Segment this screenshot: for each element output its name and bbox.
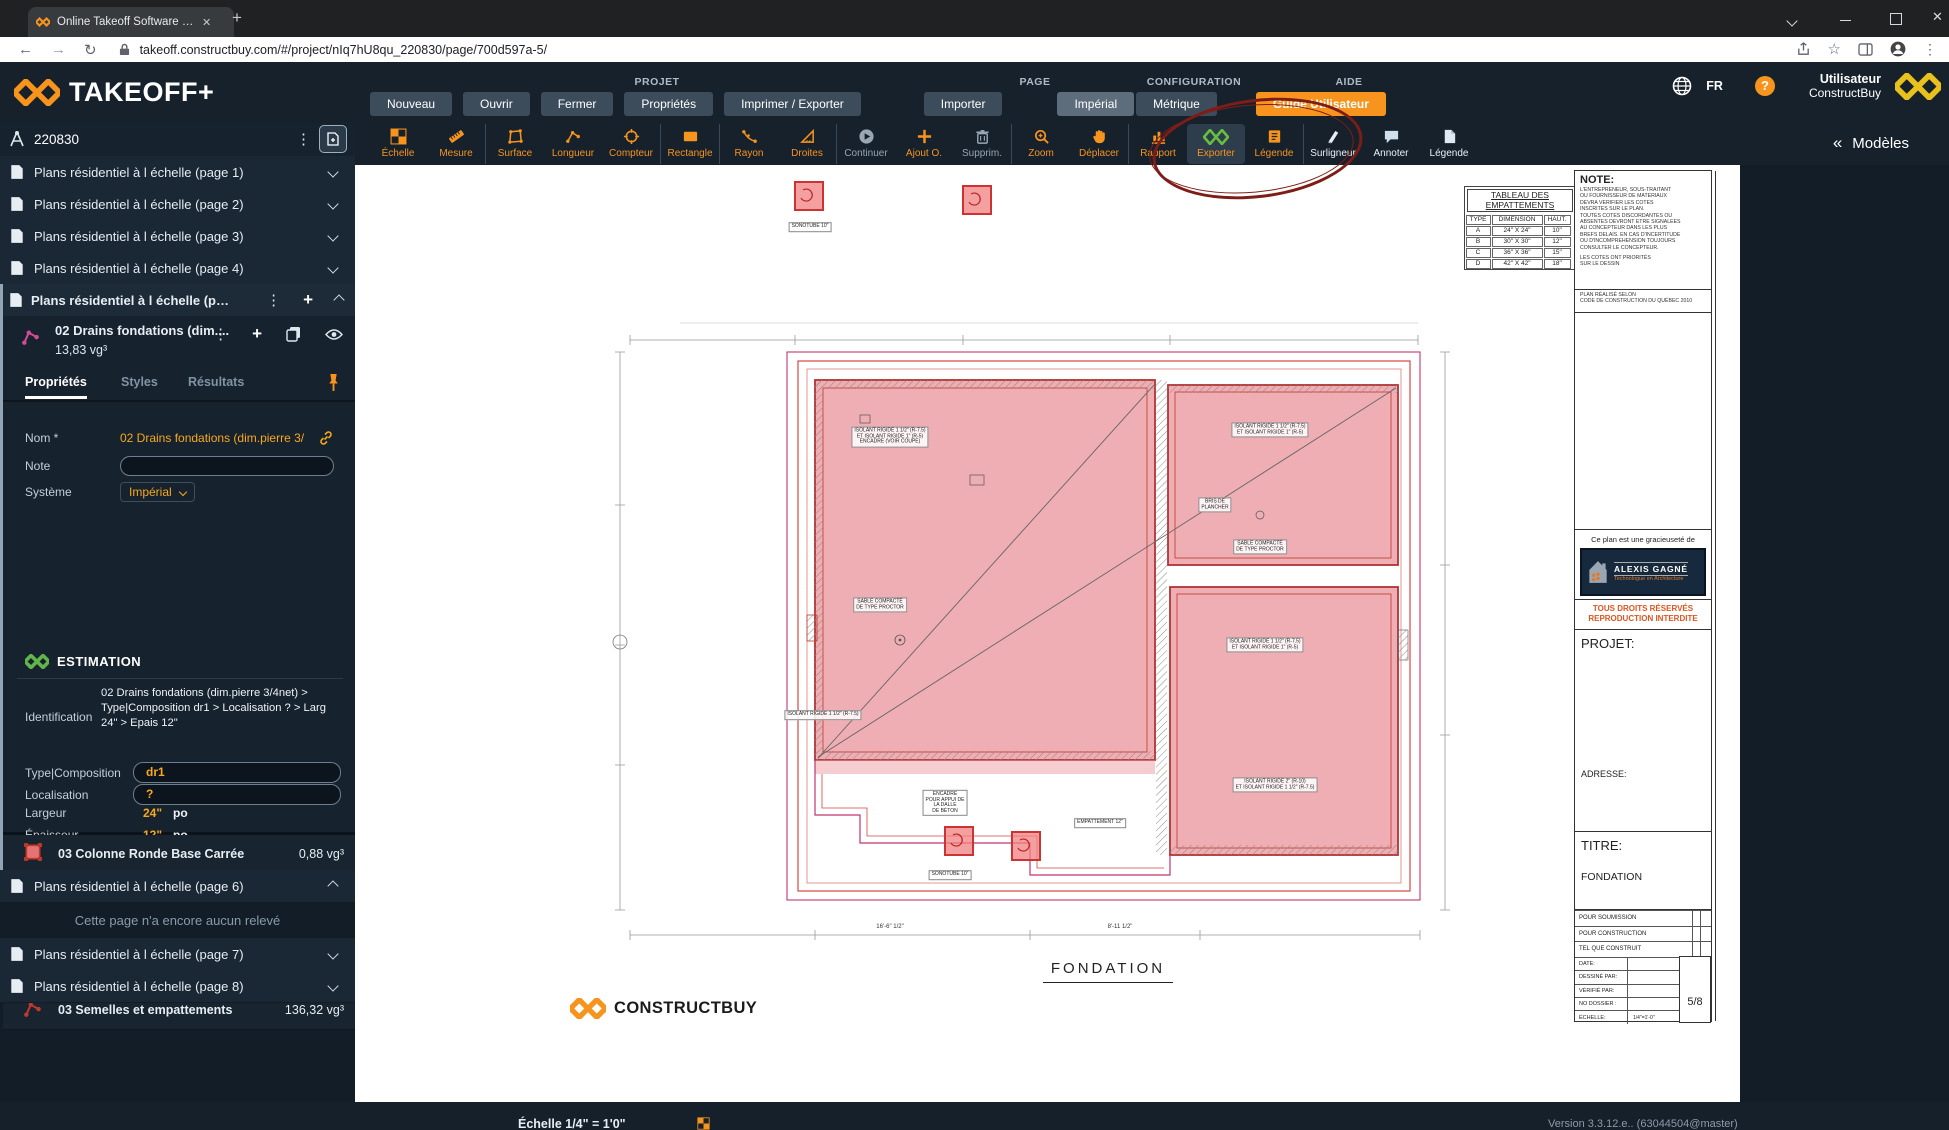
measurement-tabs: Propriétés Styles Résultats [3,366,355,402]
chevron-up-icon[interactable] [333,294,344,305]
note-title: NOTE: [1580,174,1711,186]
tool-annoter[interactable]: Annoter [1362,124,1420,164]
tab-styles[interactable]: Styles [121,375,158,389]
measurement-name: 02 Drains fondations (dim.... [55,323,230,338]
type-composition-label: Type|Composition [25,766,133,780]
fermer-button[interactable]: Fermer [541,92,614,116]
estimation-header: ESTIMATION [25,654,141,669]
largeur-label: Largeur [25,806,120,820]
sheet-number: 5/8 [1679,956,1711,1023]
note-body: L'ENTREPRENEUR, SOUS-TRAITANT OU FOURNIS… [1580,187,1711,251]
page-icon [10,946,24,962]
tableau-cell: 15" [1544,248,1571,258]
project-number: 220830 [34,132,79,147]
models-label: Modèles [1852,135,1909,152]
largeur-value[interactable]: 24" [143,806,173,820]
gracieusete-text: Ce plan est une gracieuseté de [1575,535,1711,544]
page-plus-icon [327,132,339,146]
scale-label[interactable]: Échelle 1/4" = 1'0" [518,1117,626,1130]
category-projet: PROJET [557,76,757,88]
project-kebab-icon[interactable]: ⋮ [296,130,311,148]
project-compass-icon [8,130,26,148]
estimation-title: ESTIMATION [57,654,141,669]
logo-name: ALEXIS GAGNÉ [1614,562,1688,576]
largeur-unit: po [173,806,188,820]
titleblock-check-row: TEL QUE CONSTRUIT [1575,941,1711,957]
constructbuy-brand-icon [570,998,606,1019]
collapse-chevrons-icon: « [1833,133,1842,153]
lock-icon [119,43,130,56]
bottom-status-bar: Échelle 1/4" = 1'0" Version 3.3.12.e.. (… [0,1102,1949,1130]
tool-echelle[interactable]: Échelle [369,124,427,164]
page-icon [10,878,24,894]
chevron-down-icon [327,198,338,209]
url-text[interactable]: takeoff.constructbuy.com/#/project/nIq7h… [140,43,547,57]
projet-label: PROJET: [1581,636,1711,651]
nom-row: Nom * 02 Drains fondations (dim.pierre 3… [3,430,358,446]
chevron-down-icon [327,230,338,241]
tool-exporter[interactable]: Exporter [1187,124,1245,164]
tool-mesure[interactable]: Mesure [427,124,486,164]
window-maximize-button[interactable] [1890,12,1902,30]
takeoff-logo: TAKEOFF+ [14,77,214,108]
tool-rapport[interactable]: Rapport [1129,124,1187,164]
sidebar-page-1[interactable]: Plans résidentiel à l échelle (page 1) [0,156,355,189]
tableau-cell: 18" [1544,259,1571,269]
metrique-toggle[interactable]: Métrique [1136,92,1217,116]
localisation-label: Localisation [25,788,133,802]
tool-longueur[interactable]: Longueur [544,124,602,164]
user-area: FR ? Utilisateur ConstructBuy [1672,72,1941,100]
profile-avatar-icon[interactable] [1890,41,1906,57]
tableau-cell: D [1466,259,1491,269]
user-info[interactable]: Utilisateur ConstructBuy [1809,72,1881,100]
importer-button[interactable]: Importer [924,92,1003,116]
systeme-label: Système [25,485,120,499]
drawing-toolbar: Échelle Mesure Surface Longueur [355,122,1949,165]
chevron-up-icon [327,880,338,891]
tool-surligneur[interactable]: Surligneur [1304,124,1362,164]
window-close-button[interactable]: ✕ [1932,9,1943,25]
page-icon [10,196,24,212]
version-text: Version 3.3.12.e.. (63044504@master) [1548,1118,1738,1130]
tab-title: Online Takeoff Software | Takeoff [57,16,195,28]
reload-button[interactable]: ↻ [84,41,97,59]
tool-compteur[interactable]: Compteur [602,124,661,164]
tableau-title: TABLEAU DES EMPATTEMENTS [1467,189,1573,212]
window-minimize-button[interactable] [1840,12,1851,30]
help-button[interactable]: ? [1755,76,1775,96]
sidebar-page-5[interactable]: Plans résidentiel à l échelle (pa... ⋮ + [3,284,355,316]
tool-legende[interactable]: Légende [1245,124,1304,164]
forward-button[interactable]: → [51,41,66,58]
titre-value: FONDATION [1581,871,1711,883]
chevron-down-icon [327,980,338,991]
note-footer: LES COTES ONT PRIORITÉS SUR LE DESSIN [1580,255,1711,268]
takeoff-logo-icon [14,79,60,106]
identification-value[interactable]: 02 Drains fondations (dim.pierre 3/4net)… [101,686,343,731]
measurement-kebab-icon[interactable]: ⋮ [213,325,228,343]
plan-title: FONDATION [1043,960,1173,983]
measurement-header[interactable]: 02 Drains fondations (dim.... 13,83 vg³ … [3,316,355,366]
duplicate-icon[interactable] [286,326,301,342]
tableau-cell: 10" [1544,226,1571,236]
chevron-down-icon [327,166,338,177]
properties-form: Nom * 02 Drains fondations (dim.pierre 3… [3,402,355,835]
language-label[interactable]: FR [1706,79,1723,93]
page-kebab-icon[interactable]: ⋮ [266,291,281,309]
measurement-add-icon[interactable]: + [252,324,262,344]
chevron-down-icon [327,262,338,273]
category-page: PAGE [985,76,1085,88]
chevron-down-icon [327,948,338,959]
browser-urlbar: ← → ↻ takeoff.constructbuy.com/#/project… [0,37,1949,63]
tool-continuer[interactable]: Continuer [837,124,895,164]
tool-ajout-o[interactable]: Ajout O. [895,124,953,164]
add-page-button[interactable] [319,125,347,153]
favicon-takeoff-icon [36,17,50,27]
tableau-cell: A [1466,226,1491,236]
models-panel-toggle[interactable]: « Modèles [1833,133,1909,153]
tab-resultats[interactable]: Résultats [188,375,244,389]
sidebar-page-2[interactable]: Plans résidentiel à l échelle (page 2) [0,188,355,221]
imperial-toggle[interactable]: Impérial [1057,92,1134,116]
estimation-diamond-icon [25,654,49,669]
titleblock-check-row: POUR SOUMISSION [1575,910,1711,926]
header-menu: Nouveau Ouvrir Fermer Propriétés Imprime… [370,92,1397,116]
tool-droites[interactable]: Droites [778,124,837,164]
constructbuy-brand-text: CONSTRUCTBUY [614,999,757,1018]
type-composition-row: Type|Composition dr1 [3,762,358,783]
active-page-label: Plans résidentiel à l échelle (pa... [31,293,231,308]
browser-menu-kebab-icon[interactable]: ⋮ [1923,41,1937,58]
tableau-cell: 36" X 36" [1492,248,1543,258]
imprimer-exporter-button[interactable]: Imprimer / Exporter [724,92,861,116]
share-icon[interactable] [1796,42,1811,57]
page-icon [10,164,24,180]
category-aide: AIDE [1299,76,1399,88]
plan-selon-text: PLAN RÉALISÉ SELON CODE DE CONSTRUCTION … [1580,292,1711,305]
identification-label: Identification [25,710,92,724]
ouvrir-button[interactable]: Ouvrir [463,92,530,116]
type-composition-input[interactable]: dr1 [133,762,341,783]
drawing-canvas[interactable]: SONOTUBE 10" ISOLANT RIGIDE 1 1/2" (R-7.… [355,165,1740,1102]
sidebar-page-8[interactable]: Plans résidentiel à l échelle (page 8) [0,970,355,1003]
page-icon [10,228,24,244]
page-6-label: Plans résidentiel à l échelle (page 6) [34,879,289,894]
tableau-header-type: TYPE [1466,215,1491,225]
sidebar-page-6[interactable]: Plans résidentiel à l échelle (page 6) [0,870,355,903]
pin-icon[interactable] [326,373,341,392]
measurement-row-colonne[interactable]: 03 Colonne Ronde Base Carrée 0,88 vg³ [3,835,358,874]
app-title: TAKEOFF+ [69,77,214,108]
app-header: TAKEOFF+ PROJET PAGE CONFIGURATION AIDE … [0,62,1949,122]
tableau-cell: C [1466,248,1491,258]
page-add-icon[interactable]: + [303,290,313,310]
titre-label: TITRE: [1581,838,1711,853]
chevron-down-icon [178,488,186,496]
new-tab-button[interactable]: + [232,8,242,28]
bookmark-star-icon[interactable]: ☆ [1828,40,1841,58]
tableau-cell: 42" X 42" [1492,259,1543,269]
page-icon [9,292,23,308]
rights-text: TOUS DROITS RÉSERVÉS REPRODUCTION INTERD… [1575,600,1711,624]
browser-tab[interactable]: Online Takeoff Software | Takeoff ✕ [28,7,234,37]
guide-utilisateur-button[interactable]: Guide Utilisateur [1256,92,1386,116]
tool-rayon[interactable]: Rayon [720,124,778,164]
tab-proprietes[interactable]: Propriétés [25,375,87,399]
page-icon [10,978,24,994]
page-icon [10,260,24,276]
tableau-cell: 24" X 24" [1492,226,1543,236]
systeme-value: Impérial [129,485,172,499]
back-button[interactable]: ← [18,41,33,58]
sidebar-page-3[interactable]: Plans résidentiel à l échelle (page 3) [0,220,355,253]
globe-icon[interactable] [1672,76,1692,96]
titleblock-check-row: POUR CONSTRUCTION [1575,926,1711,942]
note-label: Note [25,459,120,473]
house-icon [1587,559,1609,585]
tool-surface[interactable]: Surface [486,124,544,164]
localisation-row: Localisation ? [3,784,358,805]
adresse-label: ADRESSE: [1581,769,1711,779]
systeme-row: Système Impérial [3,482,358,502]
tab-close-icon[interactable]: ✕ [202,16,211,29]
link-icon[interactable] [318,430,334,446]
empty-page-message: Cette page n'a encore aucun relevé [0,902,355,938]
tool-legende-2[interactable]: Légende [1420,124,1478,164]
alexis-gagne-logo: ALEXIS GAGNÉ Technologue en Architecture [1580,548,1706,596]
side-panel-icon[interactable] [1858,43,1873,56]
nom-value[interactable]: 02 Drains fondations (dim.pierre 3/ [120,431,318,445]
systeme-dropdown[interactable]: Impérial [120,482,195,502]
tableau-header-dimension: DIMENSION [1492,215,1543,225]
tableau-empattements: TABLEAU DES EMPATTEMENTS TYPE DIMENSION … [1464,186,1576,270]
user-name: Utilisateur [1809,72,1881,86]
window-chevron-icon[interactable] [1788,13,1796,28]
tool-supprim[interactable]: Supprim. [953,124,1012,164]
tableau-cell: B [1466,237,1491,247]
project-row[interactable]: 220830 ⋮ [0,122,355,156]
category-configuration: CONFIGURATION [1114,76,1274,88]
logo-tagline: Technologue en Architecture [1614,576,1688,582]
browser-titlebar: Online Takeoff Software | Takeoff ✕ + ✕ [0,0,1949,37]
tool-rectangle[interactable]: Rectangle [661,124,720,164]
tableau-header-haut: HAUT. [1544,215,1571,225]
title-block: NOTE: L'ENTREPRENEUR, SOUS-TRAITANT OU F… [1574,170,1712,1022]
nouveau-button[interactable]: Nouveau [370,92,452,116]
sidebar: 220830 ⋮ Plans résidentiel à l échelle (… [0,122,355,1130]
models-panel-collapsed [1740,165,1949,1102]
app-window: Online Takeoff Software | Takeoff ✕ + ✕ … [0,0,1949,1130]
largeur-row: Largeur 24" po [3,806,358,820]
scale-checker-icon[interactable] [697,1117,710,1130]
measurement-quantity: 13,83 vg³ [55,343,107,357]
note-input[interactable] [120,456,334,476]
proprietes-button[interactable]: Propriétés [624,92,713,116]
visibility-eye-icon[interactable] [325,328,343,341]
foundation-plan-drawing [560,175,1480,965]
tableau-cell: 12" [1544,237,1571,247]
sidebar-page-7[interactable]: Plans résidentiel à l échelle (page 7) [0,938,355,971]
constructbuy-brand: CONSTRUCTBUY [570,998,757,1019]
tool-deplacer[interactable]: Déplacer [1070,124,1129,164]
note-row: Note [3,456,358,476]
nom-label: Nom * [25,431,120,445]
localisation-input[interactable]: ? [133,784,341,805]
divider [17,678,343,679]
tool-zoom[interactable]: Zoom [1012,124,1070,164]
empty-box [1575,312,1711,529]
user-company: ConstructBuy [1809,86,1881,100]
tableau-cell: 30" X 30" [1492,237,1543,247]
polyline-measure-icon [21,326,41,346]
sidebar-page-4[interactable]: Plans résidentiel à l échelle (page 4) [0,252,355,285]
constructbuy-logo-icon [1895,73,1941,100]
